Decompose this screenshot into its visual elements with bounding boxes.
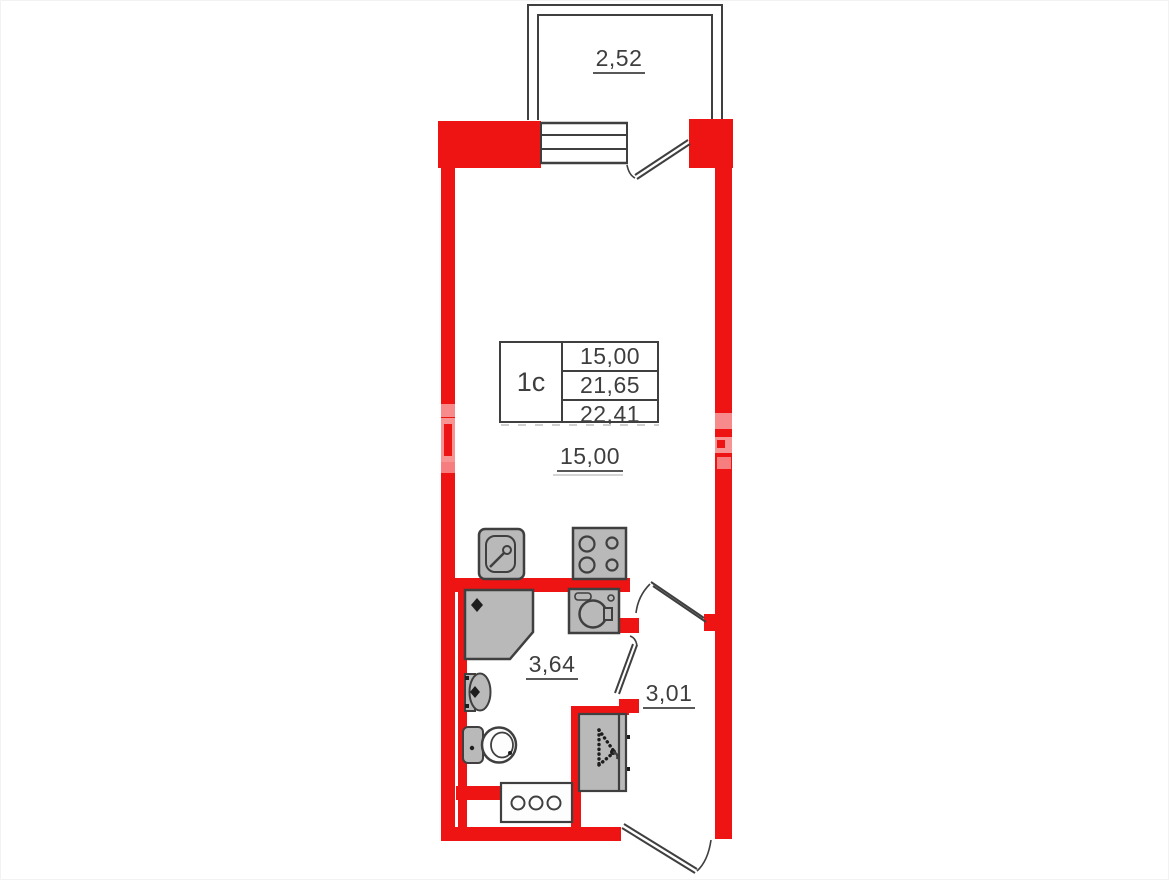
area-rows: 15,00 21,65 22,41 (563, 343, 657, 421)
stove-icon (573, 528, 626, 579)
shower-cabin-icon (465, 590, 533, 659)
hallway-area-label: 3,01 (629, 680, 709, 707)
room-area-label: 15,00 (550, 443, 630, 470)
entrance-door-swing-icon (622, 824, 711, 873)
plan-linework (1, 1, 1169, 880)
toilet-icon (463, 727, 516, 763)
kitchen-sink-icon (479, 529, 524, 579)
unit-type-label: 1c (501, 343, 563, 421)
room-door-swing-icon (636, 582, 706, 622)
area-row-total: 22,41 (563, 399, 657, 428)
washbasin-icon (465, 674, 491, 712)
wardrobe-hanger-icon (579, 714, 630, 791)
window-icon (540, 122, 628, 164)
apartment-info-table: 1c 15,00 21,65 22,41 (499, 341, 659, 423)
balcony-door-swing-icon (627, 140, 690, 179)
area-row-living: 15,00 (563, 343, 657, 370)
balcony-area-label: 2,52 (579, 45, 659, 72)
bathroom-area-label: 3,64 (512, 651, 592, 678)
washing-machine-icon (569, 589, 619, 633)
area-row-apartment: 21,65 (563, 370, 657, 399)
floor-plan-image: 1c 15,00 21,65 22,41 2,52 15,00 3,64 3,0… (0, 0, 1169, 880)
vent-shaft-icon (501, 783, 572, 822)
